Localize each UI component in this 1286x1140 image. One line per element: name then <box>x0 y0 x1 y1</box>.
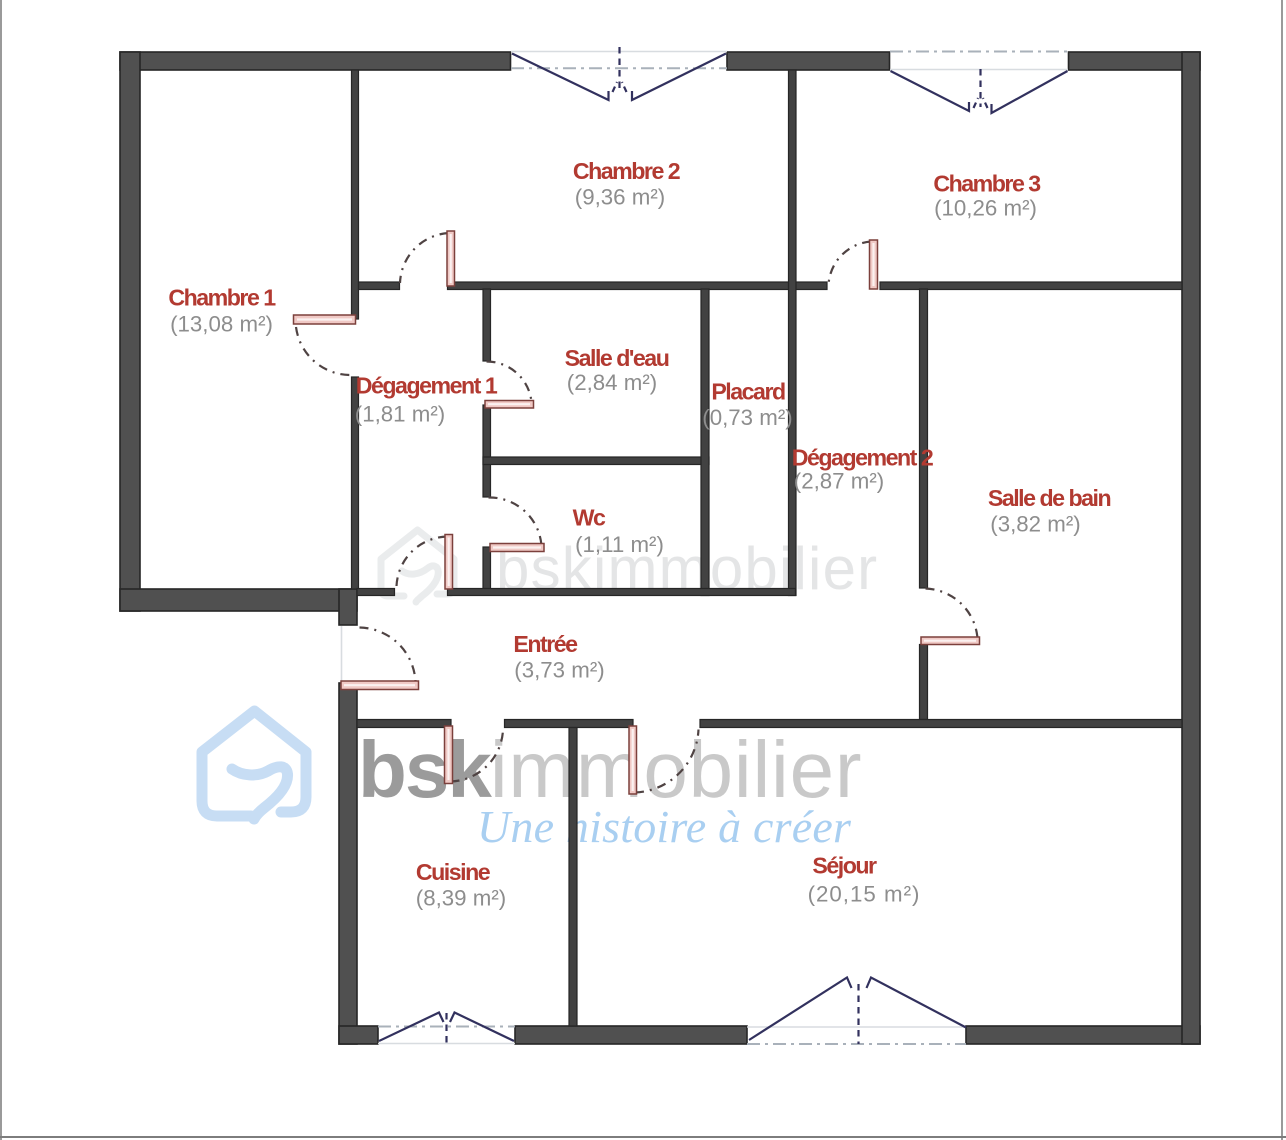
svg-text:(20,15 m²): (20,15 m²) <box>808 882 921 907</box>
svg-text:(1,81 m²): (1,81 m²) <box>355 402 445 427</box>
svg-text:(0,73 m²): (0,73 m²) <box>702 405 792 430</box>
svg-text:Séjour: Séjour <box>812 853 877 879</box>
svg-text:Dégagement 1: Dégagement 1 <box>356 373 498 399</box>
svg-text:(3,82 m²): (3,82 m²) <box>990 512 1080 537</box>
svg-text:Chambre 1: Chambre 1 <box>168 285 276 311</box>
svg-text:(8,39 m²): (8,39 m²) <box>416 886 506 911</box>
svg-text:(10,26 m²): (10,26 m²) <box>934 196 1037 221</box>
svg-text:Wc: Wc <box>573 505 606 531</box>
svg-text:(3,73 m²): (3,73 m²) <box>514 658 604 683</box>
svg-text:Salle de bain: Salle de bain <box>988 485 1111 511</box>
svg-text:Cuisine: Cuisine <box>416 859 491 885</box>
svg-text:Dégagement 2: Dégagement 2 <box>792 445 933 471</box>
svg-text:(9,36 m²): (9,36 m²) <box>575 185 665 210</box>
svg-text:(2,87 m²): (2,87 m²) <box>794 469 884 494</box>
svg-text:Chambre 3: Chambre 3 <box>933 171 1041 197</box>
svg-text:Entrée: Entrée <box>513 631 578 657</box>
svg-text:(2,84 m²): (2,84 m²) <box>567 370 657 395</box>
svg-text:(1,11 m²): (1,11 m²) <box>575 532 664 557</box>
svg-text:(13,08 m²): (13,08 m²) <box>170 312 273 337</box>
svg-text:Salle d'eau: Salle d'eau <box>565 345 669 371</box>
svg-text:Chambre 2: Chambre 2 <box>573 158 680 184</box>
svg-text:Une histoire à créer: Une histoire à créer <box>477 801 852 852</box>
svg-text:Placard: Placard <box>711 379 785 405</box>
